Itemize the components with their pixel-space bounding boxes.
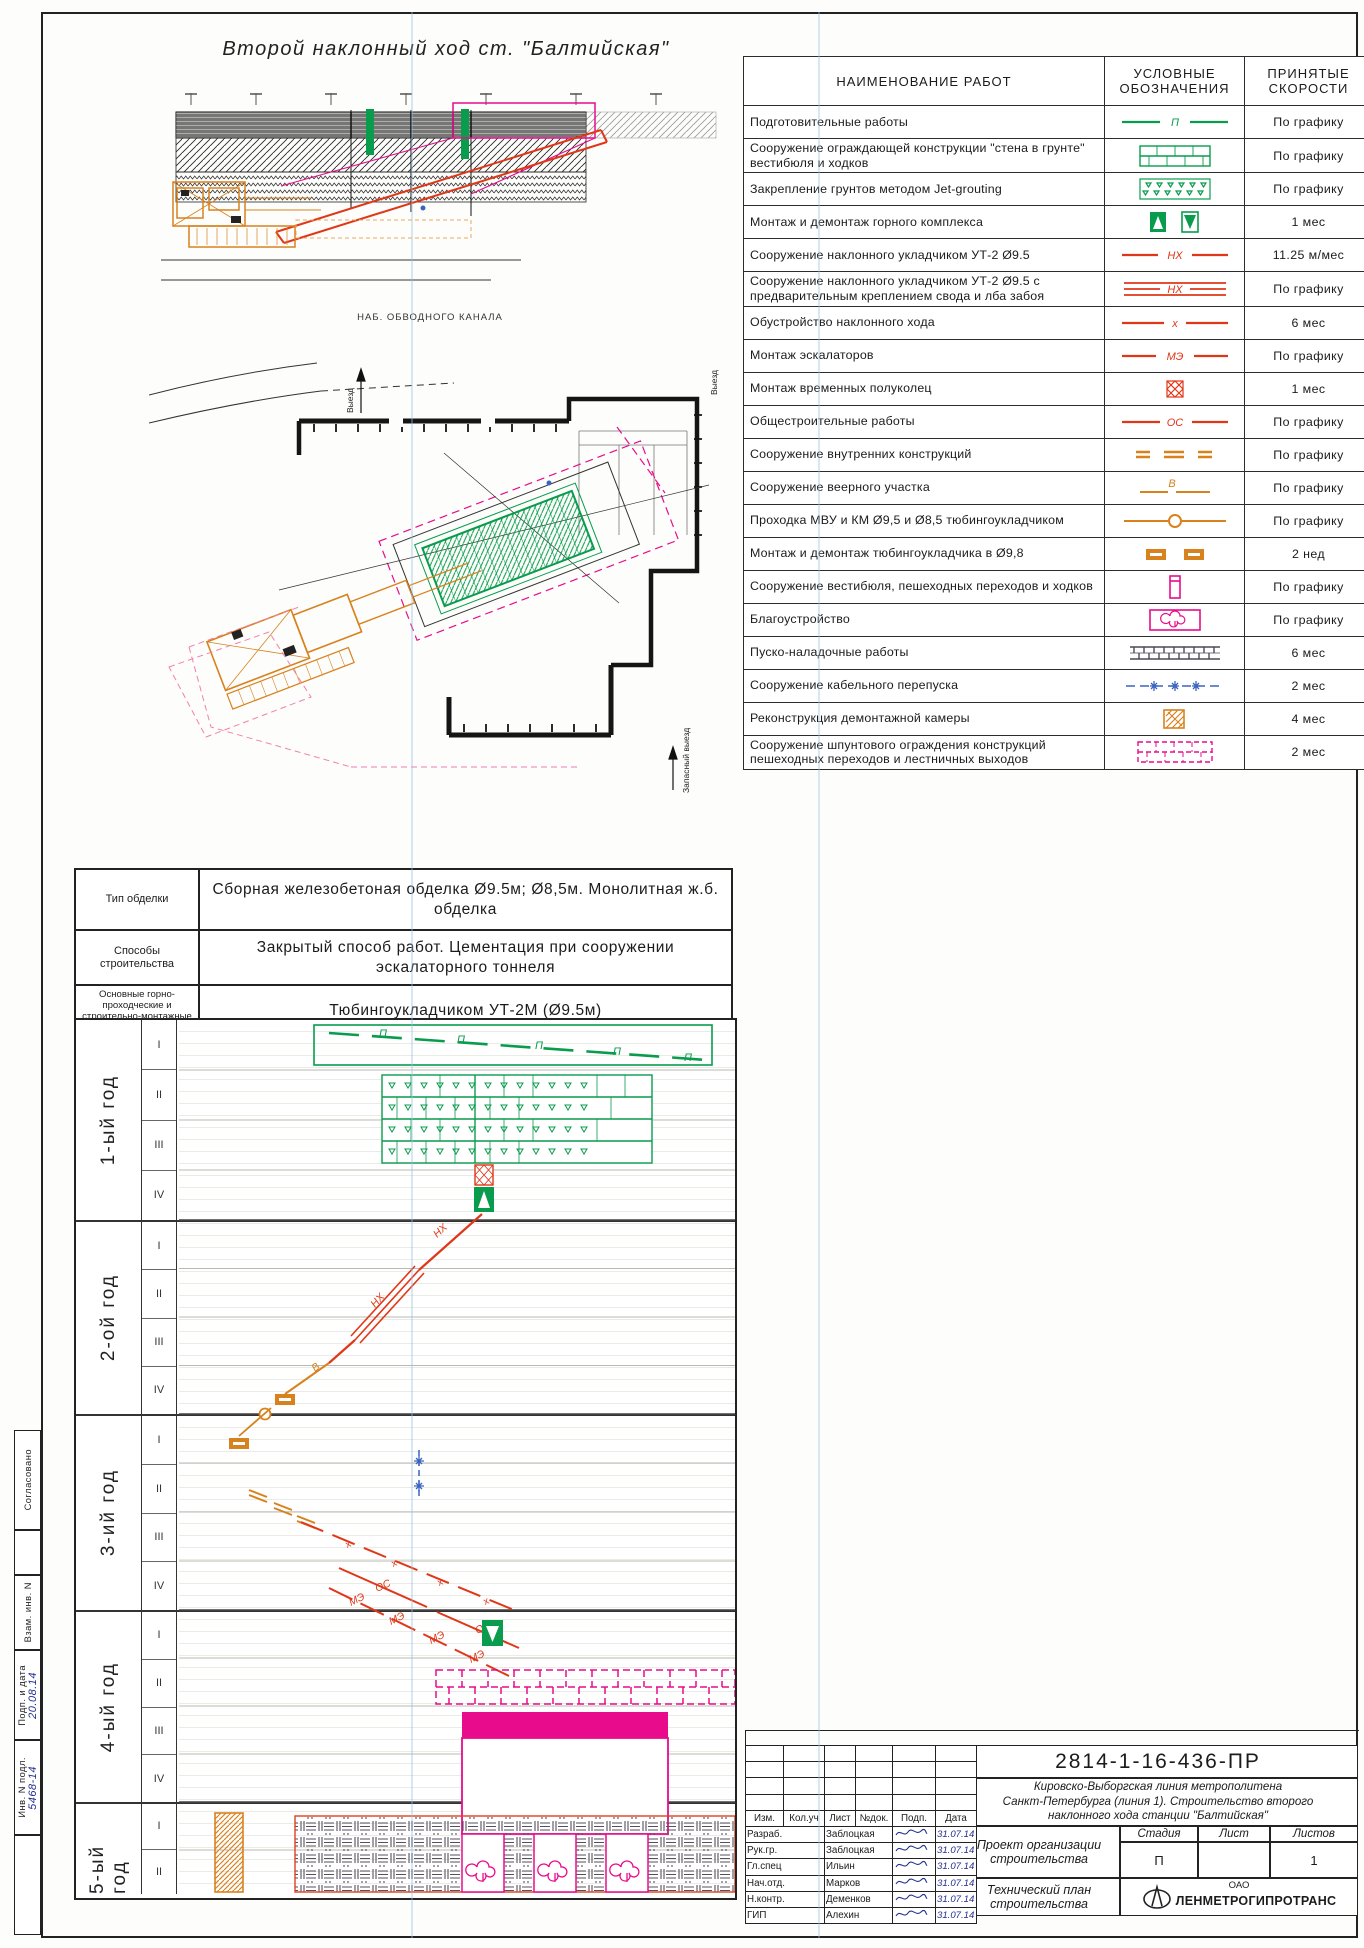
sheets-label: Листов xyxy=(1270,1826,1358,1842)
quarter-label: IV xyxy=(142,1170,176,1220)
red-os-symbol: ОС xyxy=(1116,409,1234,435)
legend-work-name: Сооружение наклонного укладчиком УТ-2 Ø9… xyxy=(744,239,1105,272)
legend-speed: 2 мес xyxy=(1245,735,1364,769)
legend-work-name: Благоустройство xyxy=(744,603,1105,636)
project-description: Кировско-Выборгская линия метрополитена … xyxy=(958,1778,1358,1826)
quarter-label: I xyxy=(142,1222,176,1269)
document-subtitle: Технический план строительства xyxy=(958,1878,1120,1916)
staff-role: Нач.отд. xyxy=(746,1875,825,1891)
legend-speed: По графику xyxy=(1245,438,1364,471)
blue-stars-symbol xyxy=(1116,673,1234,699)
stamp-header-row: Изм.Кол.учЛист№док.Подп.Дата xyxy=(746,1810,977,1826)
legend-row: Сооружение ограждающей конструкции "стен… xyxy=(744,139,1364,173)
red-nh-triple-symbol: НХ xyxy=(1116,276,1234,302)
change-log-row xyxy=(746,1762,977,1778)
exit-label: Выезд xyxy=(345,388,355,413)
spec-label: Тип обделки xyxy=(75,869,199,930)
staff-date: 31.07.14 xyxy=(936,1843,977,1859)
company-name: ЛЕНМЕТРОГИПРОТРАНС xyxy=(1176,1894,1337,1908)
red-me-symbol: МЭ xyxy=(1116,343,1234,369)
signature-icon xyxy=(894,1843,928,1855)
legend-work-name: Подготовительные работы xyxy=(744,106,1105,139)
legend-row: Подготовительные работы П По графику xyxy=(744,106,1364,139)
legend-work-name: Сооружение шпунтового ограждения констру… xyxy=(744,735,1105,769)
legend-header-name: НАИМЕНОВАНИЕ РАБОТ xyxy=(744,57,1105,106)
svg-text:П: П xyxy=(457,1034,465,1046)
staff-date: 31.07.14 xyxy=(936,1859,977,1875)
staff-signature xyxy=(893,1826,936,1842)
legend-work-name: Обустройство наклонного хода xyxy=(744,306,1105,339)
legend-work-name: Сооружение внутренних конструкций xyxy=(744,438,1105,471)
signature-icon xyxy=(894,1908,928,1920)
margin-signdate-box: Подп. и дата 20.08.14 xyxy=(14,1650,41,1740)
legend-speed: 11.25 м/мес xyxy=(1245,239,1364,272)
legend-speed: По графику xyxy=(1245,471,1364,504)
svg-text:П: П xyxy=(684,1052,692,1064)
quarter-label: IV xyxy=(142,1561,176,1610)
svg-text:x: x xyxy=(436,1577,445,1589)
svg-text:НХ: НХ xyxy=(1167,284,1183,296)
embankment-label: НАБ. ОБВОДНОГО КАНАЛА xyxy=(280,312,580,323)
svg-text:П: П xyxy=(379,1028,387,1040)
legend-row: Монтаж и демонтаж горного комплекса 1 ме… xyxy=(744,206,1364,239)
legend-work-name: Реконструкция демонтажной камеры xyxy=(744,702,1105,735)
orange-weave-symbol xyxy=(1116,706,1234,732)
margin-inventory-box: Инв. N подл. 5468-14 xyxy=(14,1740,41,1835)
quarter-label: III xyxy=(142,1318,176,1366)
site-plan-drawing: Выезд xyxy=(149,335,732,800)
svg-text:В: В xyxy=(1168,478,1175,490)
legend-row: Монтаж и демонтаж тюбингоукладчика в Ø9,… xyxy=(744,537,1364,570)
legend-row: Пуско-наладочные работы 6 мес xyxy=(744,636,1364,669)
staff-name: Деменков xyxy=(825,1891,893,1907)
svg-text:МЭ: МЭ xyxy=(467,1648,487,1666)
staff-row: Гл.спец Ильин 31.07.14 xyxy=(746,1859,977,1875)
quarter-label: IV xyxy=(142,1754,176,1802)
legend-header-speeds: ПРИНЯТЫЕ СКОРОСТИ xyxy=(1245,57,1364,106)
legend-work-name: Закрепление грунтов методом Jet-grouting xyxy=(744,173,1105,206)
quarter-label: IV xyxy=(142,1366,176,1414)
signature-icon xyxy=(894,1876,928,1888)
margin-empty-box xyxy=(14,1835,41,1935)
green-updown-symbol xyxy=(1116,209,1234,235)
signdate-label: Подп. и дата xyxy=(17,1665,27,1726)
svg-text:x: x xyxy=(1171,318,1178,330)
stamp-column-header: Кол.уч xyxy=(784,1810,825,1826)
legend-work-name: Сооружение веерного участка xyxy=(744,471,1105,504)
quarter-label: III xyxy=(142,1120,176,1170)
legend-speed: По графику xyxy=(1245,405,1364,438)
legend-speed: По графику xyxy=(1245,339,1364,372)
staff-signature xyxy=(893,1891,936,1907)
legend-speed: 1 мес xyxy=(1245,206,1364,239)
legend-work-name: Сооружение кабельного перепуска xyxy=(744,669,1105,702)
red-crosshatch-symbol xyxy=(1116,376,1234,402)
legend-row: Сооружение наклонного укладчиком УТ-2 Ø9… xyxy=(744,272,1364,306)
legend-row: Обустройство наклонного хода x 6 мес xyxy=(744,306,1364,339)
legend-header-symbols: УСЛОВНЫЕ ОБОЗНАЧЕНИЯ xyxy=(1105,57,1245,106)
staff-signature xyxy=(893,1875,936,1891)
quarter-label: I xyxy=(142,1416,176,1464)
emergency-exit-arrow xyxy=(669,747,677,790)
legend-row: Сооружение вестибюля, пешеходных переход… xyxy=(744,570,1364,603)
stamp-column-header: Подп. xyxy=(893,1810,936,1826)
company-prefix: ОАО xyxy=(1121,1880,1357,1891)
quarter-label: II xyxy=(142,1659,176,1707)
legend-speed: 1 мес xyxy=(1245,372,1364,405)
change-log-row xyxy=(746,1746,977,1762)
legend-work-name: Общестроительные работы xyxy=(744,405,1105,438)
legend-work-name: Монтаж и демонтаж горного комплекса xyxy=(744,206,1105,239)
year-label: 5-ый год xyxy=(87,1804,131,1894)
legend-row: Монтаж эскалаторов МЭ По графику xyxy=(744,339,1364,372)
legend-speed: По графику xyxy=(1245,504,1364,537)
margin-agreed-box: Согласовано xyxy=(14,1430,41,1530)
svg-text:П: П xyxy=(535,1040,543,1052)
stamp-column-header: Лист xyxy=(825,1810,856,1826)
magenta-brick-dashed-symbol xyxy=(1116,739,1234,765)
quarter-label: II xyxy=(142,1069,176,1119)
staff-date: 31.07.14 xyxy=(936,1891,977,1907)
staff-name: Марков xyxy=(825,1875,893,1891)
stamp-column-header: №док. xyxy=(856,1810,893,1826)
quarter-label: III xyxy=(142,1513,176,1562)
staff-date: 31.07.14 xyxy=(936,1826,977,1842)
year-label: 2-ой год xyxy=(98,1274,120,1361)
agreed-label: Согласовано xyxy=(23,1449,33,1510)
legend-row: Закрепление грунтов методом Jet-grouting… xyxy=(744,173,1364,206)
staff-role: Н.контр. xyxy=(746,1891,825,1907)
staff-date: 31.07.14 xyxy=(936,1875,977,1891)
legend-work-name: Пуско-наладочные работы xyxy=(744,636,1105,669)
inventory-label: Инв. N подл. xyxy=(17,1757,27,1818)
svg-text:ОС: ОС xyxy=(1166,417,1183,429)
legend-row: Сооружение веерного участка В По графику xyxy=(744,471,1364,504)
svg-text:МЭ: МЭ xyxy=(1166,351,1183,363)
legend-work-name: Проходка МВУ и КМ Ø9,5 и Ø8,5 тюбингоукл… xyxy=(744,504,1105,537)
magenta-tree-symbol xyxy=(1116,607,1234,633)
quarter-label: I xyxy=(142,1020,176,1069)
legend-speed: По графику xyxy=(1245,272,1364,306)
stage-value: П xyxy=(1120,1842,1198,1878)
legend-work-name: Монтаж и демонтаж тюбингоукладчика в Ø9,… xyxy=(744,537,1105,570)
quarter-label: II xyxy=(142,1464,176,1513)
document-number: 2814-1-16-436-ПР xyxy=(958,1745,1358,1778)
orange-circle-symbol xyxy=(1116,508,1234,534)
sheets-value: 1 xyxy=(1270,1842,1358,1878)
quarter-label: III xyxy=(142,1707,176,1755)
staff-row: Нач.отд. Марков 31.07.14 xyxy=(746,1875,977,1891)
legend-speed: 4 мес xyxy=(1245,702,1364,735)
svg-text:ОС: ОС xyxy=(373,1577,393,1595)
legend-work-name: Монтаж временных полуколец xyxy=(744,372,1105,405)
quarter-label: I xyxy=(142,1804,176,1849)
sheet-value xyxy=(1198,1842,1270,1878)
legend-speed: По графику xyxy=(1245,603,1364,636)
red-x-symbol: x xyxy=(1116,310,1234,336)
green-brick-symbol xyxy=(1116,143,1234,169)
emergency-exit-label: Запасный выезд xyxy=(681,728,691,793)
landscaping-boxes xyxy=(462,1834,648,1892)
year-label: 1-ый год xyxy=(98,1075,120,1165)
legend-row: Сооружение внутренних конструкций По гра… xyxy=(744,438,1364,471)
replacement-label: Взам. инв. N xyxy=(23,1582,33,1642)
document-type: Проект организации строительства xyxy=(958,1826,1120,1878)
staff-name: Заблоцкая xyxy=(825,1826,893,1842)
legend-speed: По графику xyxy=(1245,139,1364,173)
legend-row: Монтаж временных полуколец 1 мес xyxy=(744,372,1364,405)
quarter-label: I xyxy=(142,1612,176,1659)
drawing-sheet: Второй наклонный ход ст. "Балтийская" xyxy=(0,0,1364,1948)
quarter-label: II xyxy=(142,1269,176,1317)
drawing-title: Второй наклонный ход ст. "Балтийская" xyxy=(161,38,731,61)
company-logo: ОАО ЛЕНМЕТРОГИПРОТРАНС xyxy=(1120,1878,1358,1916)
legend-row: Проходка МВУ и КМ Ø9,5 и Ø8,5 тюбингоукл… xyxy=(744,504,1364,537)
spec-value: Закрытый способ работ. Цементация при со… xyxy=(199,930,732,985)
spec-value: Сборная железобетоная обделка Ø9.5м; Ø8,… xyxy=(199,869,732,930)
legend-speed: По графику xyxy=(1245,570,1364,603)
spec-label: Способы строительства xyxy=(75,930,199,985)
legend-row: Сооружение кабельного перепуска 2 мес xyxy=(744,669,1364,702)
legend-work-name: Сооружение ограждающей конструкции "стен… xyxy=(744,139,1105,173)
legend-row: Сооружение шпунтового ограждения констру… xyxy=(744,735,1364,769)
quarter-label: II xyxy=(142,1849,176,1895)
inventory-value: 5468-14 xyxy=(27,1766,39,1810)
staff-name: Ильин xyxy=(825,1859,893,1875)
magenta-vrect-symbol xyxy=(1116,574,1234,600)
construction-schedule: 1-ый год IIIIIIIV2-ой год IIIIIIIV3-ий г… xyxy=(74,1018,737,1900)
staff-role: Разраб. xyxy=(746,1826,825,1842)
staff-row: ГИП Алехин 31.07.14 xyxy=(746,1907,977,1923)
svg-text:НХ: НХ xyxy=(1167,250,1183,262)
legend-speed: По графику xyxy=(1245,106,1364,139)
signature-icon xyxy=(894,1827,928,1839)
svg-text:П: П xyxy=(613,1046,621,1058)
staff-date: 31.07.14 xyxy=(936,1907,977,1923)
green-dash-p-symbol: П xyxy=(1116,109,1234,135)
spec-table: Тип обделки Сборная железобетоная обделк… xyxy=(74,868,733,1038)
staff-role: Гл.спец xyxy=(746,1859,825,1875)
exit2-label: Выезд xyxy=(709,370,719,395)
svg-text:В: В xyxy=(309,1361,322,1375)
margin-replacement-box: Взам. инв. N xyxy=(14,1575,41,1650)
staff-name: Заблоцкая xyxy=(825,1843,893,1859)
year-label: 3-ий год xyxy=(98,1469,120,1556)
spec-row: Способы строительства Закрытый способ ра… xyxy=(75,930,732,985)
change-log-row xyxy=(746,1794,977,1810)
staff-role: Рук.гр. xyxy=(746,1843,825,1859)
signature-icon xyxy=(894,1892,928,1904)
year-label: 4-ый год xyxy=(98,1662,120,1752)
legend-speed: По графику xyxy=(1245,173,1364,206)
legend-speed: 2 нед xyxy=(1245,537,1364,570)
staff-row: Разраб. Заблоцкая 31.07.14 xyxy=(746,1826,977,1842)
stage-label: Стадия xyxy=(1120,1826,1198,1842)
stamp-column-header: Дата xyxy=(936,1810,977,1826)
stamp-table: Изм.Кол.учЛист№док.Подп.Дата Разраб. Заб… xyxy=(745,1745,977,1924)
exit-arrow-top xyxy=(357,369,365,413)
svg-text:x: x xyxy=(344,1539,353,1551)
legend-speed: 6 мес xyxy=(1245,636,1364,669)
gantt-chart: П П П П П xyxy=(179,1020,735,1894)
cross-section-drawing xyxy=(161,90,732,305)
dark-hatch-bar-symbol xyxy=(1116,640,1234,666)
stamp-column-header: Изм. xyxy=(746,1810,784,1826)
legend-row: Сооружение наклонного укладчиком УТ-2 Ø9… xyxy=(744,239,1364,272)
spec-row: Тип обделки Сборная железобетоная обделк… xyxy=(75,869,732,930)
staff-signature xyxy=(893,1907,936,1923)
staff-name: Алехин xyxy=(825,1907,893,1923)
staff-role: ГИП xyxy=(746,1907,825,1923)
legend-work-name: Сооружение наклонного укладчиком УТ-2 Ø9… xyxy=(744,272,1105,306)
staff-signature xyxy=(893,1859,936,1875)
svg-text:П: П xyxy=(1171,117,1179,129)
legend-work-name: Монтаж эскалаторов xyxy=(744,339,1105,372)
legend-work-name: Сооружение вестибюля, пешеходных переход… xyxy=(744,570,1105,603)
legend-table: НАИМЕНОВАНИЕ РАБОТ УСЛОВНЫЕ ОБОЗНАЧЕНИЯ … xyxy=(743,56,1364,770)
staff-row: Н.контр. Деменков 31.07.14 xyxy=(746,1891,977,1907)
legend-speed: 6 мес xyxy=(1245,306,1364,339)
orange-b-symbol: В xyxy=(1116,475,1234,501)
legend-row: Общестроительные работы ОС По графику xyxy=(744,405,1364,438)
margin-empty-box xyxy=(14,1530,41,1575)
legend-speed: 2 мес xyxy=(1245,669,1364,702)
red-nh-symbol: НХ xyxy=(1116,242,1234,268)
staff-signature xyxy=(893,1843,936,1859)
signdate-value: 20.08.14 xyxy=(27,1672,39,1719)
svg-text:x: x xyxy=(482,1596,491,1608)
staff-row: Рук.гр. Заблоцкая 31.07.14 xyxy=(746,1843,977,1859)
legend-row: Благоустройство По графику xyxy=(744,603,1364,636)
legend-row: Реконструкция демонтажной камеры 4 мес xyxy=(744,702,1364,735)
svg-text:x: x xyxy=(390,1558,399,1570)
orange-boxes-symbol xyxy=(1116,541,1234,567)
green-jet-symbol xyxy=(1116,176,1234,202)
sheet-label: Лист xyxy=(1198,1826,1270,1842)
change-log-row xyxy=(746,1778,977,1794)
orange-dashes-symbol xyxy=(1116,442,1234,468)
signature-icon xyxy=(894,1859,928,1871)
svg-text:НХ: НХ xyxy=(431,1221,451,1240)
